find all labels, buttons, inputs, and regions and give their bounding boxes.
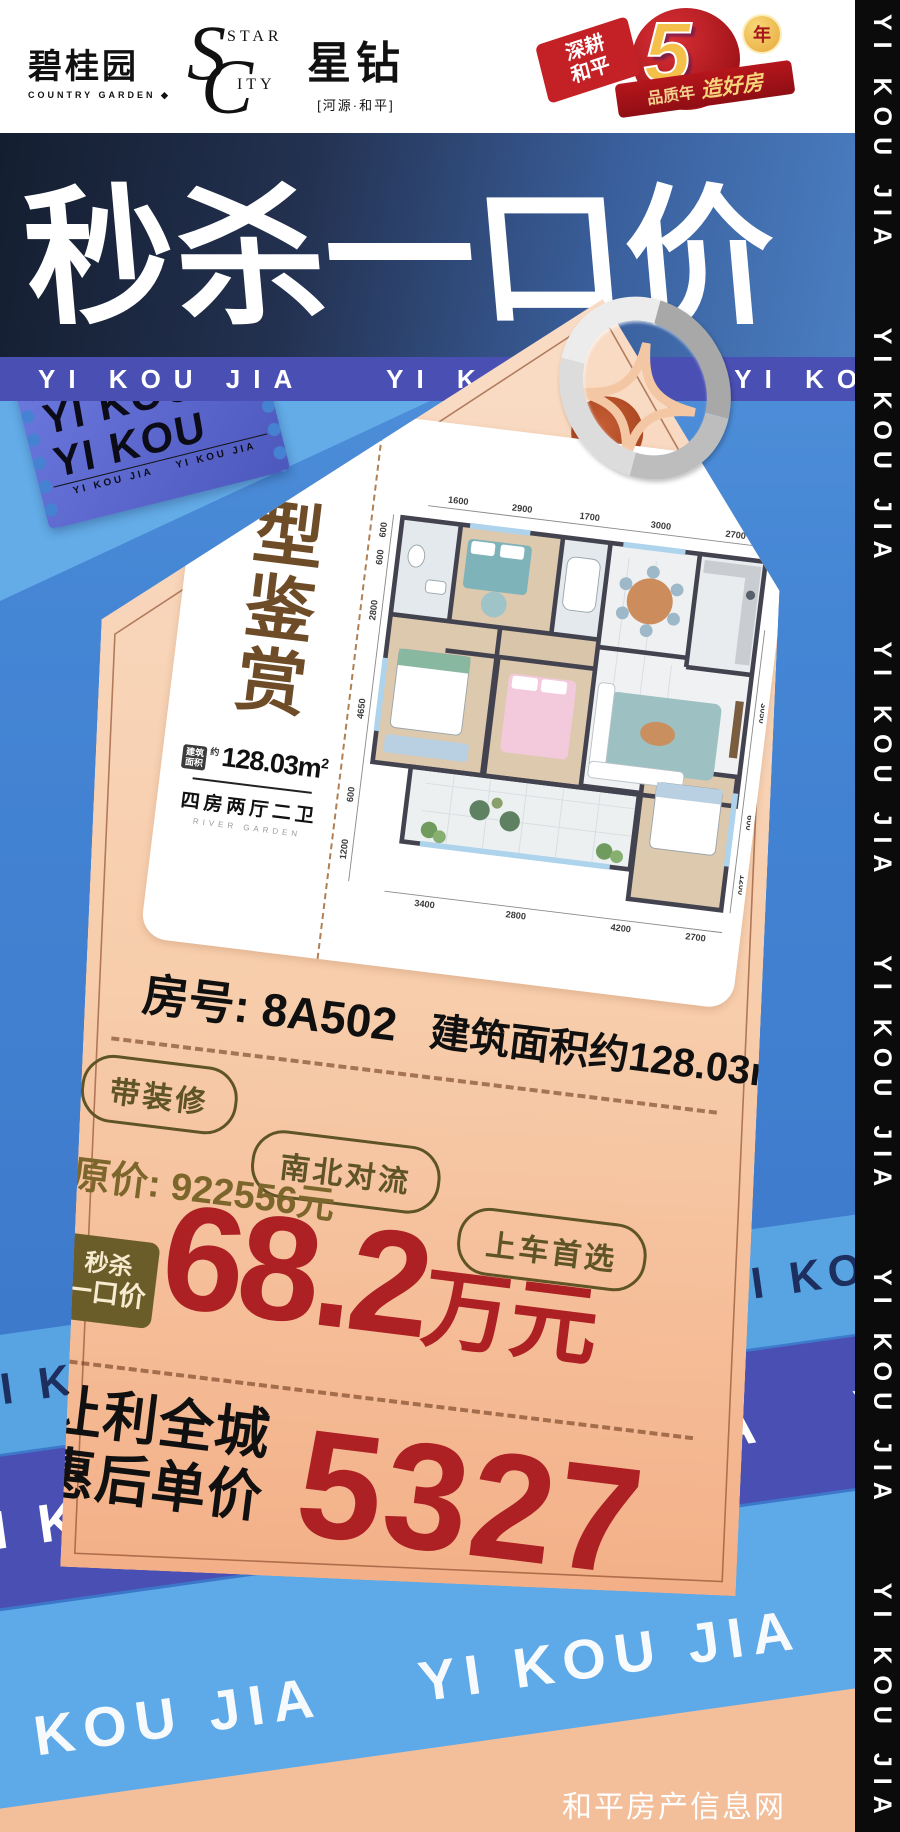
svg-text:3050: 3050: [757, 703, 769, 725]
badge-year-circle: 年: [742, 14, 782, 54]
brand-en-label: COUNTRY GARDEN ◆: [28, 90, 171, 101]
svg-text:1600: 1600: [448, 495, 470, 507]
brand-logos: 碧桂园 COUNTRY GARDEN ◆ S C STAR ITY 星钻 [河源…: [28, 24, 405, 116]
svg-text:2900: 2900: [511, 502, 533, 514]
svg-text:600: 600: [377, 522, 389, 538]
svg-text:3000: 3000: [650, 519, 672, 531]
anniversary-badge: 深耕 和平 5 年 品质年 造好房: [540, 8, 795, 118]
floor-plan-panel: 1600 2900 1700 3000 2700 600 600 2800 46…: [319, 415, 799, 1010]
side-strip: YI KOU JIA YI KOU JIA YI KOU JIA YI KOU …: [855, 0, 900, 1832]
svg-text:600: 600: [345, 786, 357, 802]
svg-text:2800: 2800: [505, 909, 527, 921]
svg-text:600: 600: [744, 815, 756, 831]
svg-text:1200: 1200: [736, 874, 748, 896]
svg-text:3400: 3400: [414, 898, 436, 910]
svg-text:2800: 2800: [367, 599, 379, 621]
area-value: 128.03m2: [220, 742, 329, 786]
country-garden-logo: 碧桂园 COUNTRY GARDEN ◆: [28, 39, 171, 101]
svg-text:600: 600: [374, 549, 386, 565]
svg-text:4650: 4650: [355, 698, 367, 720]
star-city-monogram: S C STAR ITY: [187, 24, 291, 116]
diamond-icon: ◆: [161, 90, 171, 100]
svg-text:2700: 2700: [725, 529, 747, 541]
hero-band: 秒杀一口价: [0, 133, 855, 357]
side-strip-text: YI KOU JIA YI KOU JIA YI KOU JIA YI KOU …: [867, 0, 896, 1832]
svg-text:2700: 2700: [685, 931, 707, 943]
svg-text:1700: 1700: [579, 511, 601, 523]
sub-brand-logo: 星钻 [河源·和平]: [307, 27, 405, 114]
brand-cn-label: 碧桂园: [28, 39, 171, 88]
location-label: [河源·和平]: [307, 95, 405, 114]
flash-sale-badge: 秒杀 一口价: [53, 1232, 161, 1329]
built-area-text: 建筑面积约128.03m2: [427, 999, 801, 1102]
sub-brand-label: 星钻: [307, 27, 405, 91]
poster: YI KOU JIA YI KOU JIA YI KOU JIA YI KOU …: [0, 0, 900, 1832]
feature-badge: 带装修: [77, 1051, 241, 1138]
svg-text:1200: 1200: [338, 838, 350, 860]
area-approx: 约: [210, 745, 221, 759]
monogram-city: ITY: [237, 76, 276, 94]
promo-text: 让利全城 惠后单价: [36, 1378, 274, 1531]
svg-text:4200: 4200: [610, 922, 632, 934]
flash-price: 68.2万元: [153, 1171, 611, 1393]
floor-plan: 1600 2900 1700 3000 2700 600 600 2800 46…: [321, 421, 794, 1005]
area-badge: 建筑面积: [181, 744, 208, 771]
monogram-star: STAR: [227, 28, 283, 46]
watermark: 和平房产信息网: [562, 1782, 786, 1826]
room-number: 房号: 8A502: [139, 958, 401, 1055]
